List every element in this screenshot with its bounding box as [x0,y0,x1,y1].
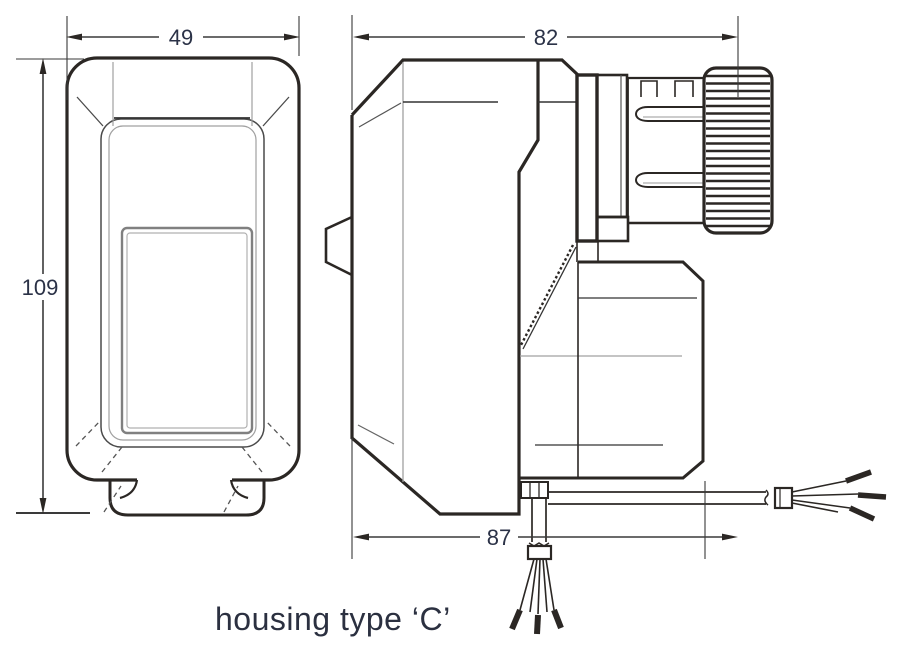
connector-clip-1 [641,81,657,97]
arrowhead-right [284,34,300,41]
cable-bottom [512,498,561,634]
arrowhead-top [40,58,47,74]
front-tab-fillet-left [120,480,137,498]
caption-label: housing type ‘C’ [215,601,451,637]
side-body-outline [352,60,538,514]
side-view [326,60,886,634]
wire-tips-right [846,472,886,519]
arrowhead-bottom [40,498,47,514]
front-cover-outline [101,119,264,447]
front-width-value: 49 [169,25,193,50]
arrowhead-left [66,34,82,41]
arrowhead-left [353,34,369,41]
front-chamfer-top-right [263,97,289,126]
front-chamfer-top-left [77,97,103,126]
cable-gland [521,482,548,498]
side-lower-chamfer-inner [358,425,394,444]
connector-clip-2 [675,81,693,97]
front-bottom-tab [110,480,264,515]
arrowhead-left [353,534,369,541]
dimension-front-height: 109 [16,58,90,514]
cable-clamp-bottom [528,546,551,559]
front-height-value: 109 [22,275,59,300]
technical-drawing-page: 49 109 [0,0,907,651]
side-hatched-edge [523,247,576,349]
front-window-inner [127,233,247,428]
side-hatched-edge-ticks [520,245,573,347]
front-view [67,58,299,515]
side-chamfer-inner [359,103,401,127]
dimension-side-depth-total: 82 [352,15,738,110]
prong-upper [636,107,705,121]
side-left-lug [326,217,352,275]
collar-ring-2 [597,75,627,217]
housing-dimension-drawing: 49 109 [0,0,907,651]
arrowhead-right [722,34,738,41]
side-depth-total-value: 82 [534,25,558,50]
wire-tips-bottom [512,610,561,634]
front-window-outer [122,228,252,433]
wire-fan-right [792,481,858,512]
side-depth-body-value: 87 [487,525,511,550]
cable-end-clamp [775,488,792,508]
side-body-top [352,60,578,115]
front-cover-inner-outline [109,126,256,440]
knob-ribs [706,76,770,226]
arrowhead-right [722,534,738,541]
prong-lower [636,173,705,187]
collar-foot [597,217,628,241]
collar-ring [577,75,597,241]
wire-fan-bottom [520,559,554,614]
front-dashed-chamfers [76,421,290,512]
